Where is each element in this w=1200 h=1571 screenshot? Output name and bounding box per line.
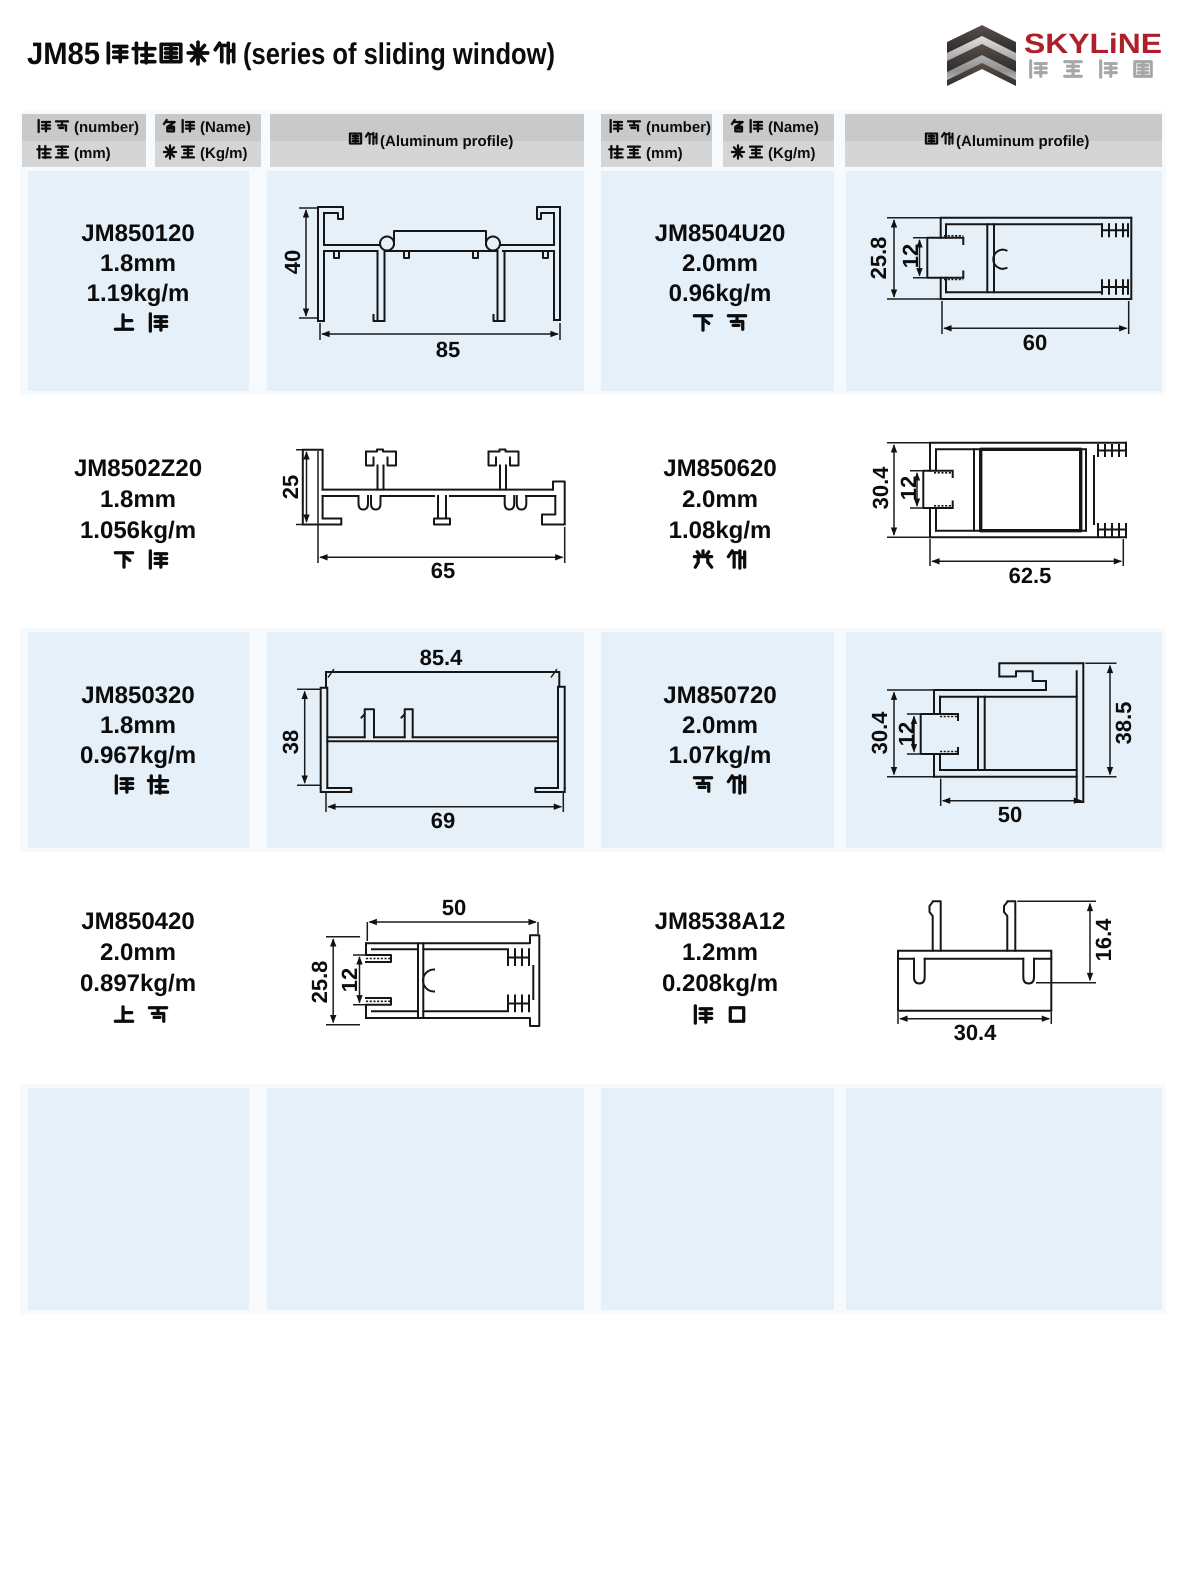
svg-text:30.4: 30.4 (868, 466, 893, 510)
svg-text:1.07kg/m: 1.07kg/m (669, 742, 772, 769)
svg-text:0.897kg/m: 0.897kg/m (80, 970, 196, 997)
svg-text:1.19kg/m: 1.19kg/m (87, 280, 190, 307)
svg-text:1.056kg/m: 1.056kg/m (80, 517, 196, 544)
svg-text:60: 60 (1023, 330, 1047, 355)
svg-text:1.8mm: 1.8mm (100, 712, 176, 739)
svg-text:(mm): (mm) (646, 145, 683, 162)
svg-text:JM850720: JM850720 (663, 682, 776, 709)
svg-text:2.0mm: 2.0mm (682, 250, 758, 277)
svg-text:(mm): (mm) (74, 145, 111, 162)
svg-text:12: 12 (894, 722, 919, 746)
svg-text:69: 69 (431, 808, 455, 833)
svg-text:(number): (number) (74, 119, 139, 136)
svg-text:JM8538A12: JM8538A12 (655, 908, 786, 935)
svg-text:1.2mm: 1.2mm (682, 939, 758, 966)
svg-text:(Aluminum profile): (Aluminum profile) (956, 133, 1089, 150)
svg-text:16.4: 16.4 (1091, 918, 1116, 962)
svg-text:85: 85 (436, 337, 460, 362)
svg-text:1.08kg/m: 1.08kg/m (669, 517, 772, 544)
svg-text:0.208kg/m: 0.208kg/m (662, 970, 778, 997)
svg-text:12: 12 (898, 244, 923, 268)
svg-text:50: 50 (998, 802, 1022, 827)
svg-text:1.8mm: 1.8mm (100, 250, 176, 277)
svg-text:2.0mm: 2.0mm (682, 712, 758, 739)
svg-text:38.5: 38.5 (1111, 702, 1136, 745)
svg-text:JM850420: JM850420 (81, 908, 194, 935)
svg-text:(Name): (Name) (200, 119, 251, 136)
svg-text:12: 12 (337, 968, 362, 992)
svg-text:(Name): (Name) (768, 119, 819, 136)
svg-text:(Kg/m): (Kg/m) (768, 145, 816, 162)
svg-text:40: 40 (280, 250, 305, 274)
svg-text:(Aluminum profile): (Aluminum profile) (380, 133, 513, 150)
svg-text:25: 25 (278, 475, 303, 499)
svg-text:12: 12 (896, 476, 921, 500)
svg-text:2.0mm: 2.0mm (100, 939, 176, 966)
svg-text:JM8502Z20: JM8502Z20 (74, 455, 202, 482)
svg-text:JM85: JM85 (27, 36, 100, 71)
svg-text:30.4: 30.4 (867, 711, 892, 755)
svg-text:2.0mm: 2.0mm (682, 486, 758, 513)
svg-text:30.4: 30.4 (954, 1020, 998, 1045)
svg-text:0.96kg/m: 0.96kg/m (669, 280, 772, 307)
svg-text:25.8: 25.8 (307, 961, 332, 1004)
svg-text:JM850120: JM850120 (81, 220, 194, 247)
svg-text:85.4: 85.4 (420, 645, 464, 670)
svg-text:JM850320: JM850320 (81, 682, 194, 709)
svg-text:50: 50 (442, 895, 466, 920)
svg-text:25.8: 25.8 (866, 237, 891, 280)
svg-text:JM850620: JM850620 (663, 455, 776, 482)
svg-text:JM8504U20: JM8504U20 (655, 220, 786, 247)
svg-text:38: 38 (278, 730, 303, 754)
svg-text:0.967kg/m: 0.967kg/m (80, 742, 196, 769)
svg-text:(series of sliding window): (series of sliding window) (243, 38, 555, 71)
svg-text:(Kg/m): (Kg/m) (200, 145, 248, 162)
svg-text:65: 65 (431, 558, 455, 583)
svg-text:1.8mm: 1.8mm (100, 486, 176, 513)
svg-text:SKYLiNE: SKYLiNE (1024, 28, 1162, 59)
svg-text:62.5: 62.5 (1009, 563, 1052, 588)
svg-text:(number): (number) (646, 119, 711, 136)
